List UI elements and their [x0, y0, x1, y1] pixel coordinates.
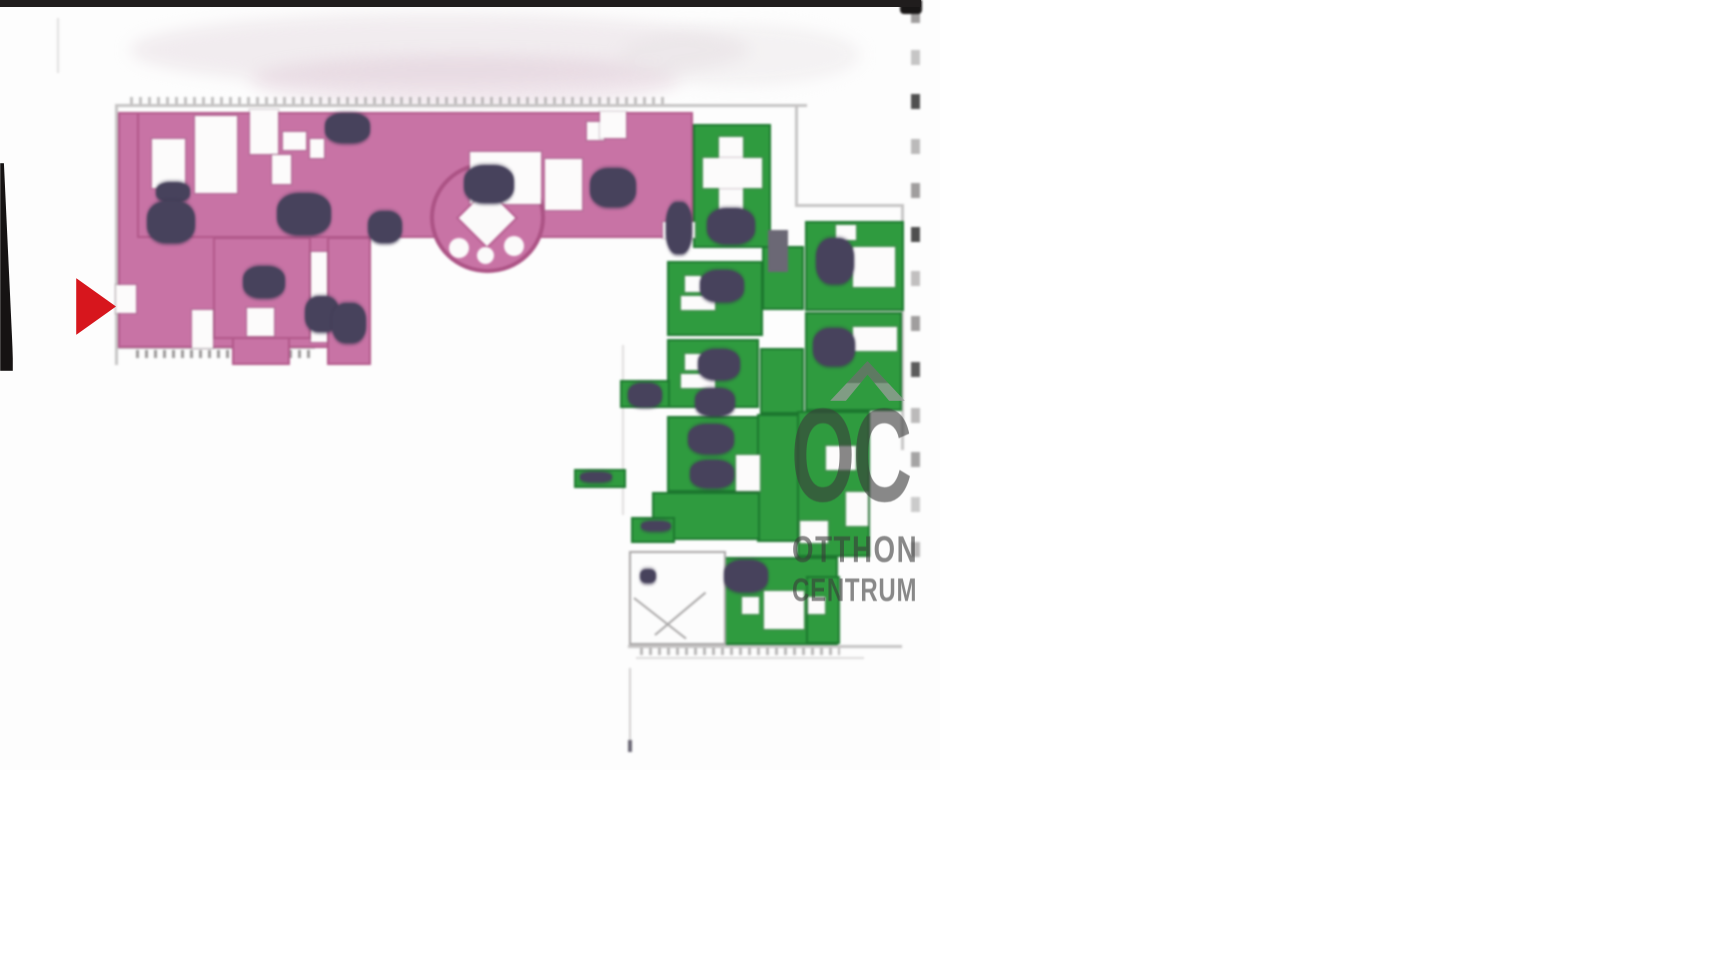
furn [688, 424, 734, 454]
cutout [853, 247, 895, 287]
furn [243, 266, 285, 298]
furn [695, 388, 735, 416]
cutout [742, 597, 759, 614]
smudge [620, 25, 860, 85]
watermark-logo: OC [791, 390, 910, 523]
furn [156, 182, 190, 202]
wall [795, 107, 798, 207]
watermark-brand-line2: CENTRUM [792, 574, 917, 606]
furn [277, 193, 331, 235]
furn [724, 560, 768, 592]
dash [911, 94, 920, 109]
wall [115, 104, 807, 107]
furn [700, 270, 744, 302]
dash [911, 139, 920, 154]
wall [795, 204, 904, 207]
cutout [853, 327, 897, 351]
furn [147, 201, 195, 243]
wall [57, 18, 59, 73]
cutout [703, 158, 762, 188]
cutout [195, 116, 237, 193]
cutout [247, 308, 274, 336]
ticks [640, 648, 840, 655]
furn [816, 238, 854, 284]
dash [911, 452, 920, 467]
wall [622, 345, 624, 515]
dash [911, 408, 920, 423]
furn [666, 202, 692, 254]
furn [640, 569, 656, 583]
floorplan-scan-image: OC OTTHON CENTRUM [0, 0, 940, 770]
cutout [272, 155, 291, 184]
cutout [545, 159, 582, 210]
furn [813, 328, 855, 366]
pink [232, 337, 290, 365]
dash [911, 50, 920, 65]
dash [911, 362, 920, 377]
page-background: OC OTTHON CENTRUM [0, 0, 1728, 972]
furn [580, 472, 612, 482]
furn [690, 460, 734, 488]
furn [628, 383, 662, 407]
cutout [192, 310, 213, 348]
furn [641, 521, 671, 531]
dash [911, 227, 920, 242]
ticks [130, 97, 670, 104]
cutout [600, 112, 626, 138]
dash [911, 497, 920, 512]
circle [449, 238, 469, 258]
cutout [152, 139, 185, 188]
wall [636, 657, 864, 659]
scan-edge-bar [0, 0, 921, 7]
circle [477, 247, 494, 264]
dash [911, 316, 920, 331]
furn [332, 303, 366, 343]
wall-dark [628, 740, 632, 752]
circle [504, 236, 524, 256]
watermark-brand-line1: OTTHON [792, 531, 918, 568]
cutout [250, 110, 278, 154]
cutout [736, 455, 760, 491]
furn [368, 211, 402, 243]
cutout [283, 132, 306, 150]
wall [629, 668, 631, 746]
cutout [685, 276, 701, 292]
furn [464, 165, 514, 203]
dash [911, 271, 920, 286]
cutout [116, 285, 136, 313]
cutout [310, 139, 324, 158]
furn [698, 349, 740, 380]
wall-dark [768, 230, 788, 272]
furn [325, 113, 370, 143]
furn [590, 168, 636, 207]
dash [911, 183, 920, 198]
furn [707, 208, 755, 244]
